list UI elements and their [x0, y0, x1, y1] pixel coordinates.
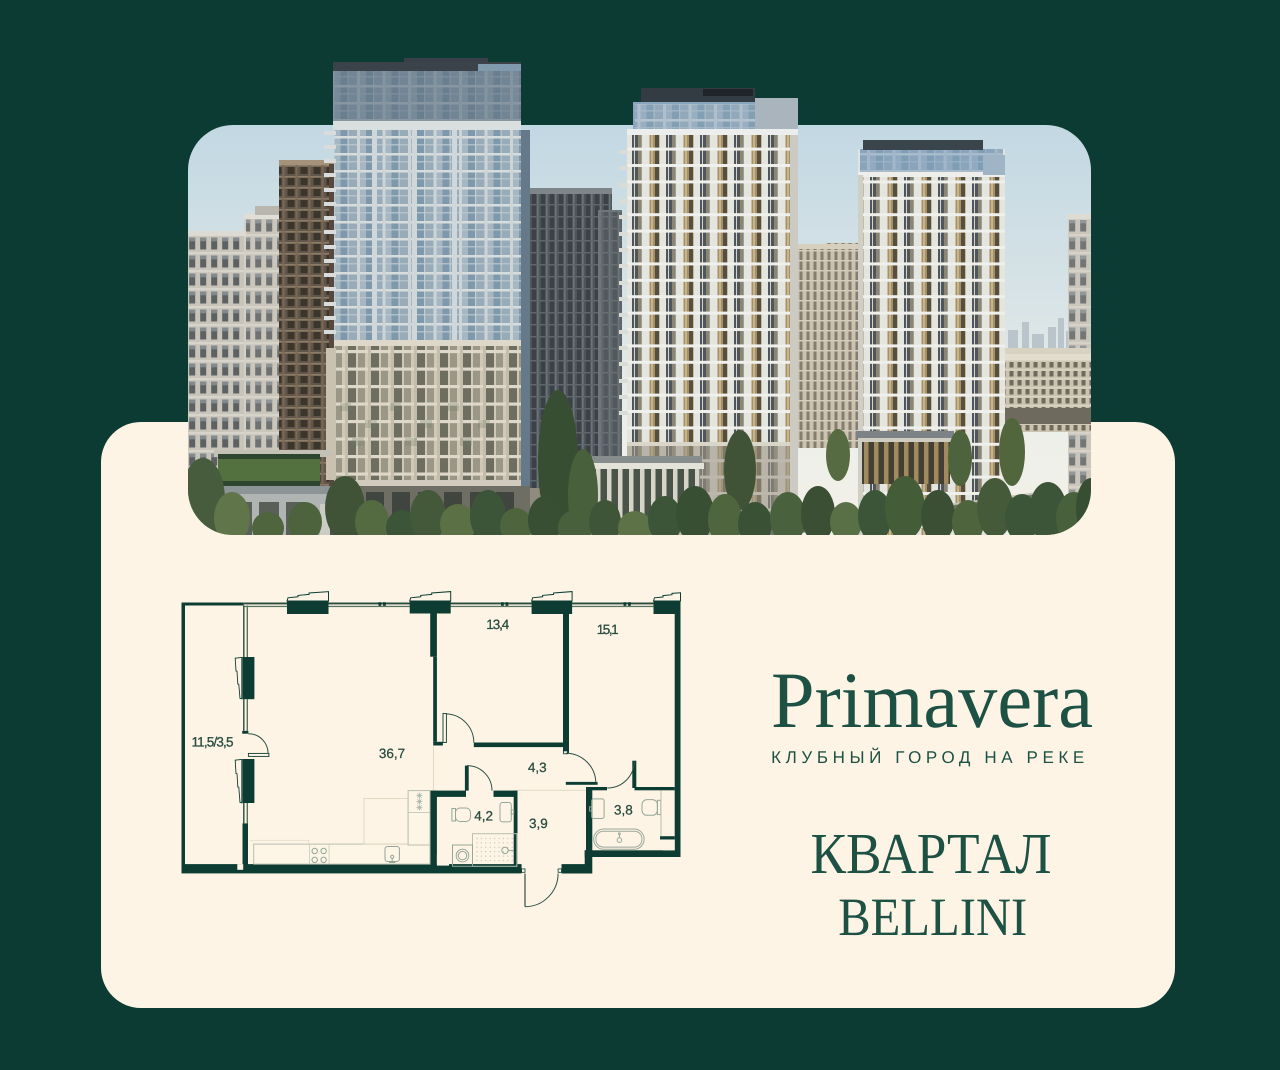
svg-text:11,5/3,5: 11,5/3,5 [192, 734, 234, 749]
svg-text:4,2: 4,2 [474, 809, 493, 824]
svg-text:4,3: 4,3 [528, 760, 547, 775]
svg-text:КЛУБНЫЙ ГОРОД НА РЕКЕ: КЛУБНЫЙ ГОРОД НА РЕКЕ [771, 747, 1089, 767]
svg-text:15,1: 15,1 [597, 622, 619, 637]
svg-text:3,8: 3,8 [614, 803, 633, 818]
svg-text:BELLINI: BELLINI [838, 887, 1027, 947]
svg-text:Primavera: Primavera [771, 657, 1093, 745]
svg-text:КВАРТАЛ: КВАРТАЛ [811, 821, 1052, 886]
svg-text:13,4: 13,4 [486, 617, 509, 632]
svg-text:3,9: 3,9 [529, 816, 548, 831]
svg-text:36,7: 36,7 [379, 746, 405, 761]
